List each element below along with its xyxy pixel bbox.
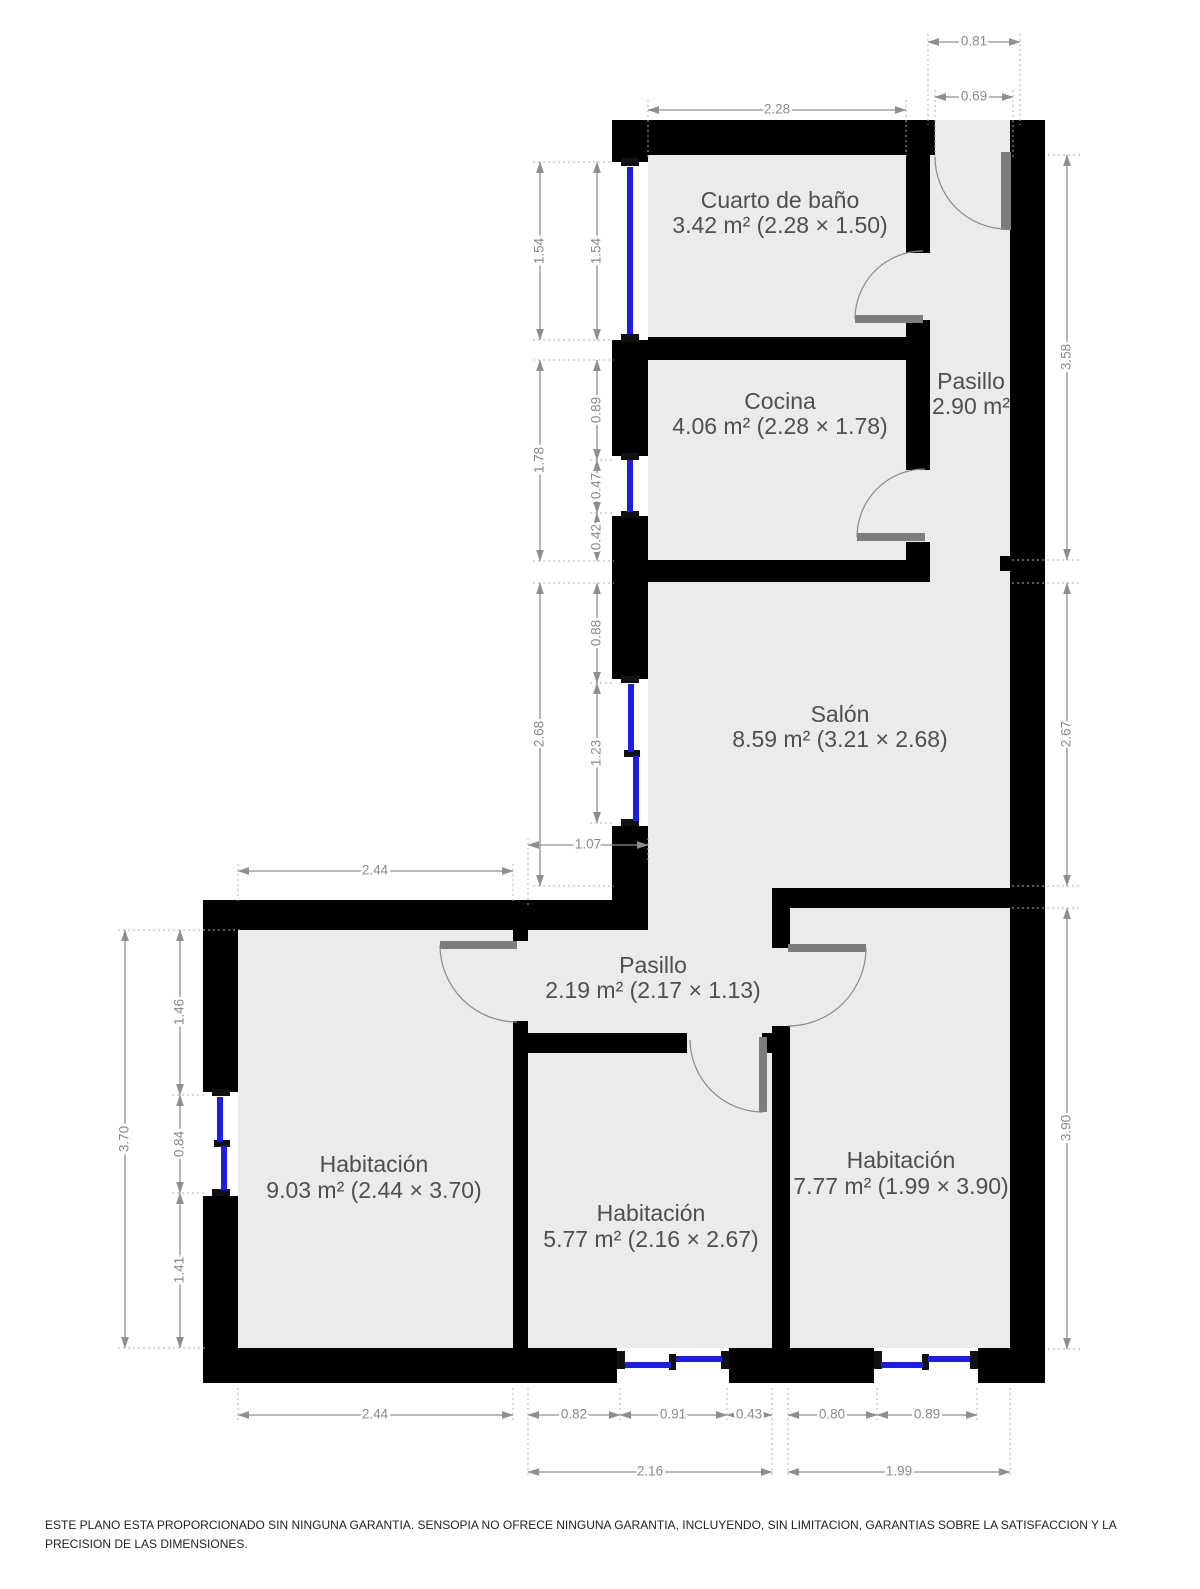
dim-label: 1.23: [589, 740, 604, 766]
dim-label: 1.41: [172, 1257, 187, 1283]
room-name: Salón: [811, 701, 870, 727]
dim-label: 2.44: [362, 863, 389, 878]
dim-label: 1.78: [532, 447, 547, 473]
bedroom-right-window: [874, 1348, 978, 1383]
room-area: 9.03 m² (2.44 × 3.70): [266, 1177, 481, 1203]
dim-label: 0.43: [736, 1407, 762, 1422]
disclaimer-text: ESTE PLANO ESTA PROPORCIONADO SIN NINGUN…: [45, 1516, 1165, 1553]
bedroom-middle-window: [617, 1348, 729, 1383]
room-area: 5.77 m² (2.16 × 2.67): [543, 1226, 758, 1252]
dim-label: 1.54: [589, 237, 604, 264]
kitchen-window: [612, 453, 648, 518]
room-area: 2.19 m² (2.17 × 1.13): [545, 977, 760, 1003]
dim-label: 1.07: [575, 837, 601, 852]
dim-label: 0.81: [961, 34, 987, 49]
dim-label: 0.89: [914, 1407, 940, 1422]
dim-label: 0.91: [660, 1407, 686, 1422]
floor-plan-drawing: 2.28 0.81 0.69 1.54 1.78 2.68 1.54 0.89 …: [0, 0, 1200, 1589]
dim-label: 2.28: [764, 102, 790, 117]
dim-label: 1.99: [886, 1464, 912, 1479]
room-name: Pasillo: [937, 368, 1005, 394]
room-name: Cuarto de baño: [701, 187, 860, 213]
dim-label: 3.70: [117, 1126, 132, 1152]
dim-label: 0.89: [589, 397, 604, 423]
room-area: 4.06 m² (2.28 × 1.78): [672, 413, 887, 439]
dim-label: 0.69: [961, 89, 987, 104]
room-name: Cocina: [744, 388, 816, 414]
room-name: Pasillo: [619, 952, 687, 978]
dim-label: 0.84: [172, 1130, 187, 1157]
dim-label: 3.90: [1059, 1115, 1074, 1141]
dim-label: 0.88: [589, 620, 604, 646]
dim-label: 0.47: [589, 473, 604, 499]
room-area: 2.90 m²: [932, 393, 1010, 419]
dim-label: 2.16: [637, 1464, 663, 1479]
bedroom-left-window: [203, 1089, 238, 1196]
floor-plan-page: 2.28 0.81 0.69 1.54 1.78 2.68 1.54 0.89 …: [0, 0, 1200, 1589]
dim-label: 2.44: [362, 1407, 389, 1422]
room-name: Habitación: [847, 1147, 956, 1173]
room-name: Habitación: [597, 1200, 706, 1226]
dim-label: 2.68: [532, 721, 547, 747]
living-room-window: [612, 676, 648, 826]
dim-label: 1.46: [172, 999, 187, 1025]
room-area: 7.77 m² (1.99 × 3.90): [793, 1173, 1008, 1199]
dim-label: 0.82: [561, 1407, 587, 1422]
dim-label: 3.58: [1059, 344, 1074, 370]
dim-label: 0.42: [589, 524, 604, 550]
room-area: 8.59 m² (3.21 × 2.68): [732, 726, 947, 752]
dim-label: 2.67: [1059, 721, 1074, 747]
room-label-bathroom: Cuarto de baño 3.42 m² (2.28 × 1.50): [672, 187, 887, 238]
bathroom-window: [612, 158, 648, 342]
dim-label: 1.54: [532, 237, 547, 264]
room-area: 3.42 m² (2.28 × 1.50): [672, 212, 887, 238]
room-label-hallway-upper: Pasillo 2.90 m²: [932, 368, 1010, 419]
room-name: Habitación: [320, 1151, 429, 1177]
dim-label: 0.80: [819, 1407, 845, 1422]
